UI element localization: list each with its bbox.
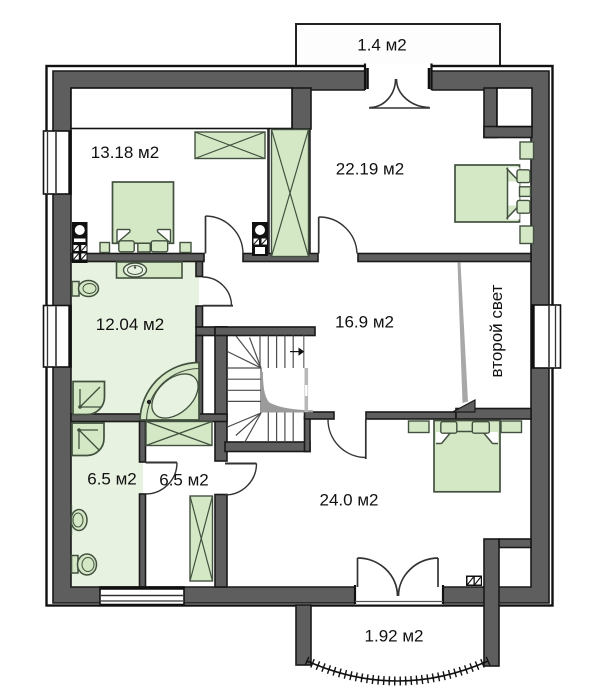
svg-text:12.04 м2: 12.04 м2 xyxy=(96,315,164,334)
svg-text:22.19 м2: 22.19 м2 xyxy=(336,160,404,179)
svg-text:24.0 м2: 24.0 м2 xyxy=(320,491,379,510)
svg-text:второй свет: второй свет xyxy=(487,284,506,377)
svg-text:16.9 м2: 16.9 м2 xyxy=(335,313,394,332)
svg-text:1.92 м2: 1.92 м2 xyxy=(365,627,424,646)
svg-text:6.5 м2: 6.5 м2 xyxy=(159,471,209,490)
svg-text:13.18 м2: 13.18 м2 xyxy=(91,143,159,162)
svg-text:6.5 м2: 6.5 м2 xyxy=(87,470,137,489)
svg-text:1.4 м2: 1.4 м2 xyxy=(357,36,407,55)
